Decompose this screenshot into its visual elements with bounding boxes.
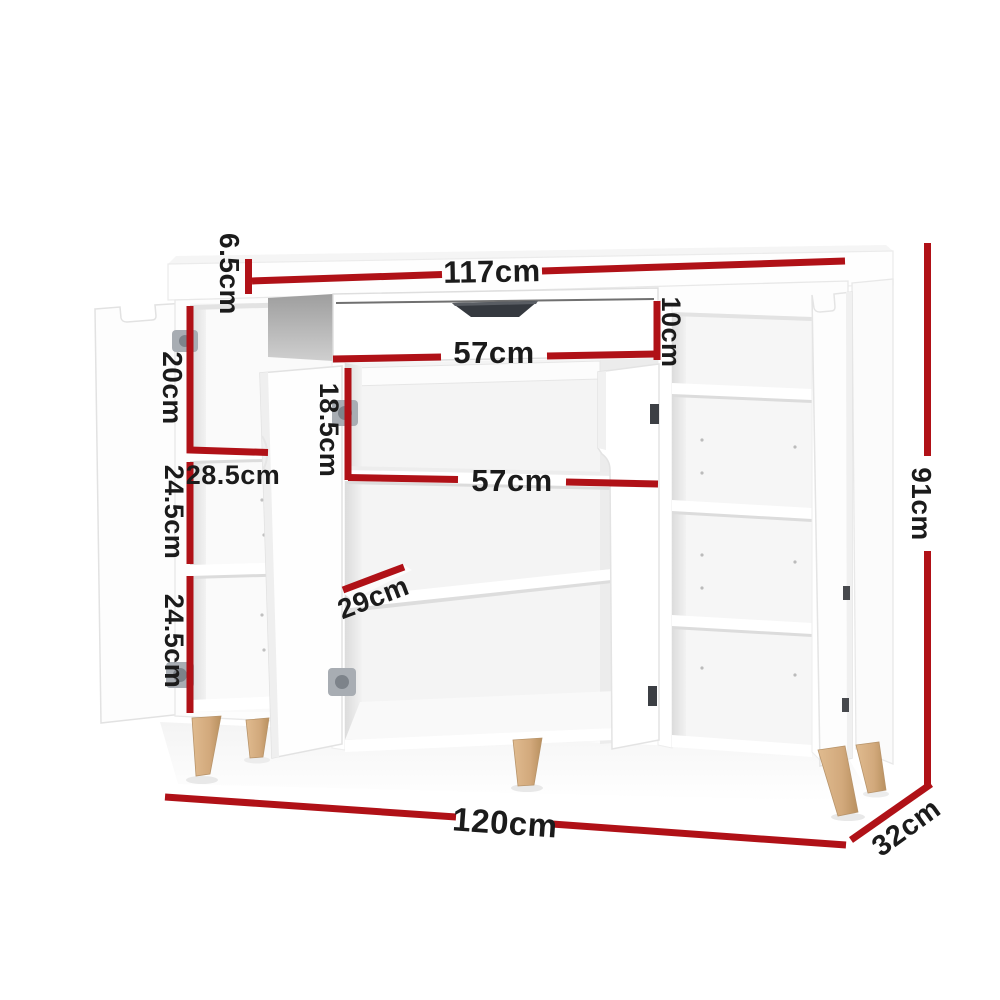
hinge [650,404,659,424]
dimension-label-24-5cm-a: 24.5cm [159,465,189,560]
dimension-label-10cm: 10cm [656,296,686,367]
dimension-label-57cm-drawer: 57cm [453,335,534,370]
hinge [172,330,198,352]
dimension-label-20cm: 20cm [157,351,188,425]
hinge [328,668,356,696]
hinge [842,698,849,712]
dimension-diagram-canvas: 6.5cm 117cm 10cm 57cm 20cm 28.5cm 24.5cm… [0,0,1000,1000]
hinge [648,686,657,706]
drawer-side-shadow [268,294,333,361]
dimension-label-6-5cm: 6.5cm [214,233,245,315]
dimension-label-24-5cm-b: 24.5cm [159,594,189,689]
dimension-label-18-5cm: 18.5cm [314,383,344,478]
dimension-label-57cm-middle: 57cm [471,463,552,498]
hinge [843,586,850,600]
dimension-label-120cm: 120cm [451,800,559,844]
shoe-cabinet-dimension-diagram: 6.5cm 117cm 10cm 57cm 20cm 28.5cm 24.5cm… [0,0,1000,1000]
dimension-label-91cm: 91cm [906,467,937,541]
dimension-label-117cm: 117cm [443,253,541,290]
dimension-label-28-5cm: 28.5cm [186,460,281,490]
right-side-panel [852,279,893,764]
right-column-shelves [672,312,812,757]
